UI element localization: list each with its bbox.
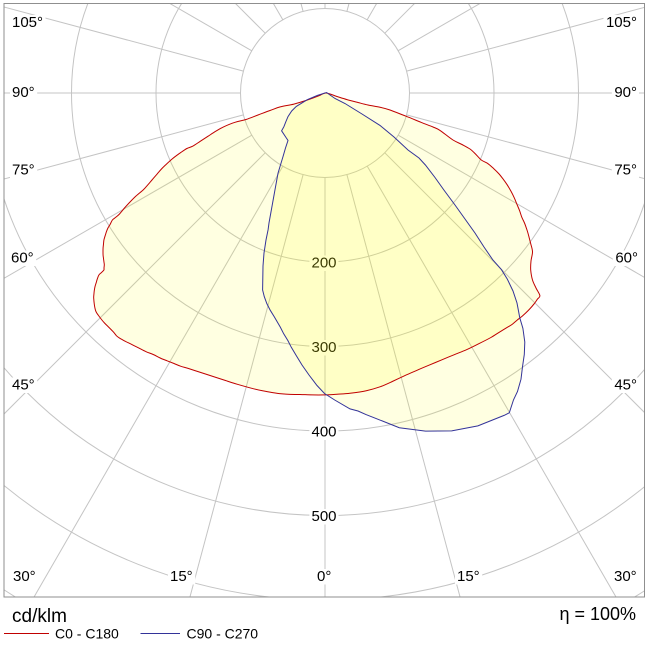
svg-text:30°: 30° bbox=[614, 568, 637, 585]
svg-text:400: 400 bbox=[311, 424, 336, 441]
svg-text:45°: 45° bbox=[614, 377, 637, 394]
svg-text:15°: 15° bbox=[457, 568, 480, 585]
svg-text:90°: 90° bbox=[614, 84, 637, 101]
svg-text:75°: 75° bbox=[12, 162, 35, 179]
svg-text:500: 500 bbox=[311, 508, 336, 525]
svg-text:C0 - C180: C0 - C180 bbox=[55, 626, 119, 642]
svg-text:105°: 105° bbox=[606, 14, 637, 31]
svg-text:75°: 75° bbox=[614, 162, 637, 179]
svg-text:30°: 30° bbox=[13, 568, 36, 585]
svg-text:cd/klm: cd/klm bbox=[12, 606, 67, 627]
svg-text:60°: 60° bbox=[11, 250, 34, 267]
svg-text:15°: 15° bbox=[170, 568, 193, 585]
svg-text:90°: 90° bbox=[12, 84, 35, 101]
svg-text:η = 100%: η = 100% bbox=[559, 604, 636, 624]
svg-text:105°: 105° bbox=[12, 14, 43, 31]
svg-text:C90 - C270: C90 - C270 bbox=[187, 626, 259, 642]
svg-text:60°: 60° bbox=[615, 250, 638, 267]
svg-text:0°: 0° bbox=[317, 568, 331, 585]
svg-text:45°: 45° bbox=[12, 377, 35, 394]
